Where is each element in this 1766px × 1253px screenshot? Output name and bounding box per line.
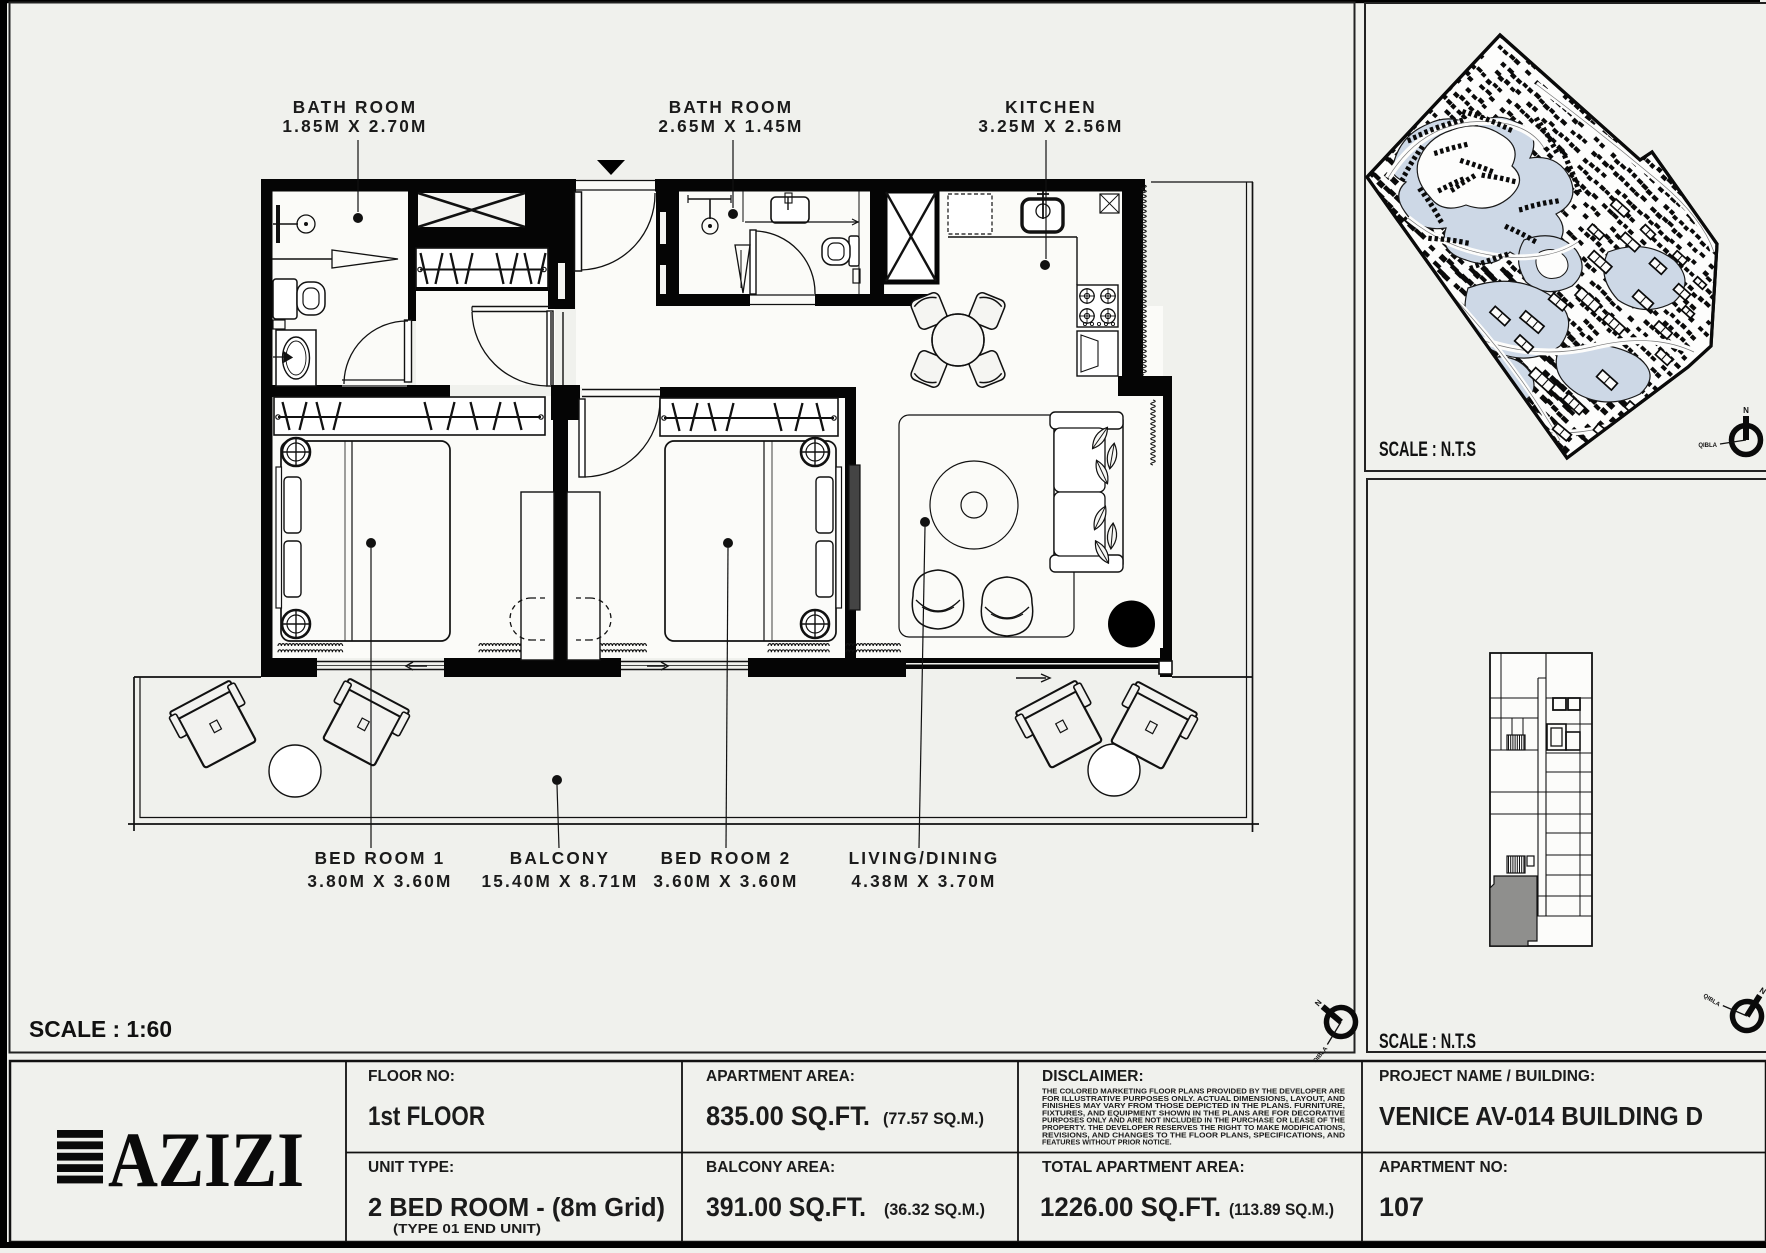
svg-text:(TYPE 01 END UNIT): (TYPE 01 END UNIT) — [393, 1221, 541, 1236]
svg-text:FEATURES WITHOUT PRIOR NOTICE.: FEATURES WITHOUT PRIOR NOTICE. — [1042, 1138, 1172, 1147]
svg-text:BED ROOM 1: BED ROOM 1 — [315, 848, 446, 868]
svg-text:BALCONY AREA:: BALCONY AREA: — [706, 1159, 835, 1176]
svg-text:(36.32 SQ.M.): (36.32 SQ.M.) — [884, 1200, 985, 1219]
svg-text:2 BED ROOM - (8m Grid): 2 BED ROOM - (8m Grid) — [368, 1192, 665, 1222]
svg-text:VENICE AV-014 BUILDING D: VENICE AV-014 BUILDING D — [1379, 1101, 1703, 1131]
svg-text:APARTMENT AREA:: APARTMENT AREA: — [706, 1068, 855, 1085]
svg-text:4.38M X 3.70M: 4.38M X 3.70M — [851, 871, 996, 891]
svg-text:(113.89 SQ.M.): (113.89 SQ.M.) — [1229, 1200, 1334, 1219]
svg-text:AZIZI: AZIZI — [108, 1116, 304, 1203]
svg-text:(77.57 SQ.M.): (77.57 SQ.M.) — [883, 1109, 984, 1128]
svg-text:QIBLA: QIBLA — [1698, 443, 1717, 449]
svg-text:TOTAL APARTMENT AREA:: TOTAL APARTMENT AREA: — [1042, 1159, 1245, 1176]
svg-text:DISCLAIMER:: DISCLAIMER: — [1042, 1068, 1144, 1085]
svg-text:UNIT TYPE:: UNIT TYPE: — [368, 1159, 454, 1176]
svg-text:1.85M X 2.70M: 1.85M X 2.70M — [282, 116, 427, 136]
svg-text:1226.00 SQ.FT.: 1226.00 SQ.FT. — [1040, 1192, 1221, 1222]
svg-text:391.00 SQ.FT.: 391.00 SQ.FT. — [706, 1192, 866, 1222]
svg-text:SCALE : N.T.S: SCALE : N.T.S — [1379, 1030, 1476, 1053]
svg-text:SCALE : 1:60: SCALE : 1:60 — [29, 1016, 172, 1042]
svg-text:BED ROOM 2: BED ROOM 2 — [661, 848, 792, 868]
svg-text:PROJECT NAME / BUILDING:: PROJECT NAME / BUILDING: — [1379, 1068, 1595, 1085]
svg-text:LIVING/DINING: LIVING/DINING — [849, 848, 1000, 868]
svg-text:15.40M X 8.71M: 15.40M X 8.71M — [482, 871, 639, 891]
svg-text:3.60M X 3.60M: 3.60M X 3.60M — [653, 871, 798, 891]
svg-text:FLOOR NO:: FLOOR NO: — [368, 1068, 455, 1085]
svg-text:APARTMENT NO:: APARTMENT NO: — [1379, 1159, 1508, 1176]
svg-text:BATH ROOM: BATH ROOM — [293, 97, 418, 117]
svg-text:SCALE : N.T.S: SCALE : N.T.S — [1379, 438, 1476, 461]
svg-text:2.65M X 1.45M: 2.65M X 1.45M — [658, 116, 803, 136]
svg-text:KITCHEN: KITCHEN — [1005, 97, 1097, 117]
svg-text:835.00 SQ.FT.: 835.00 SQ.FT. — [706, 1101, 870, 1131]
svg-text:3.25M X 2.56M: 3.25M X 2.56M — [978, 116, 1123, 136]
svg-text:107: 107 — [1379, 1192, 1424, 1222]
svg-text:BATH ROOM: BATH ROOM — [669, 97, 794, 117]
svg-text:N: N — [1743, 406, 1749, 415]
svg-text:1st FLOOR: 1st FLOOR — [368, 1101, 485, 1131]
svg-text:3.80M X 3.60M: 3.80M X 3.60M — [307, 871, 452, 891]
svg-text:BALCONY: BALCONY — [510, 848, 610, 868]
